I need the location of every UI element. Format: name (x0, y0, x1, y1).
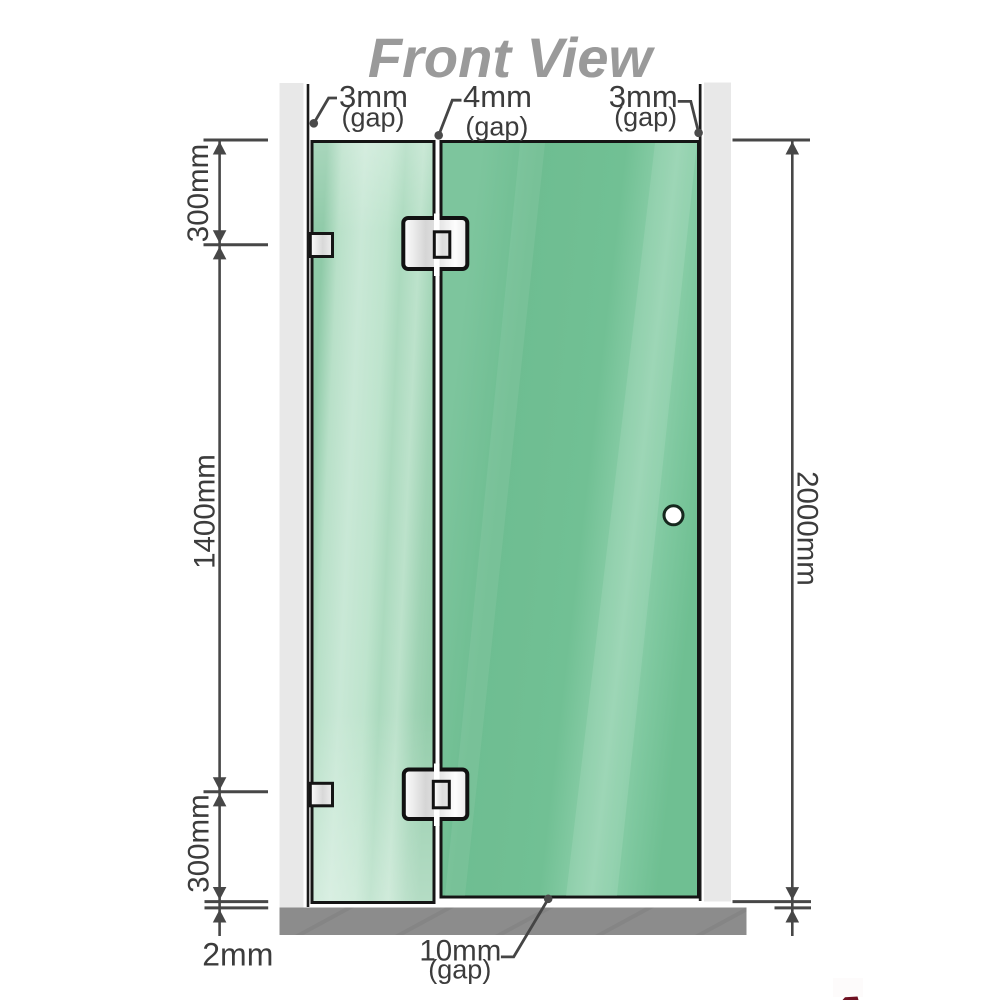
svg-text:4mm: 4mm (463, 79, 532, 114)
svg-text:2mm: 2mm (202, 937, 273, 973)
svg-text:(gap): (gap) (428, 954, 491, 984)
svg-text:300mm: 300mm (183, 794, 216, 892)
svg-text:(gap): (gap) (341, 102, 404, 132)
svg-text:(gap): (gap) (614, 102, 677, 132)
svg-text:1400mm: 1400mm (189, 454, 222, 569)
svg-text:300mm: 300mm (182, 144, 215, 242)
svg-text:2000mm: 2000mm (790, 471, 823, 586)
svg-text:(gap): (gap) (465, 112, 528, 142)
